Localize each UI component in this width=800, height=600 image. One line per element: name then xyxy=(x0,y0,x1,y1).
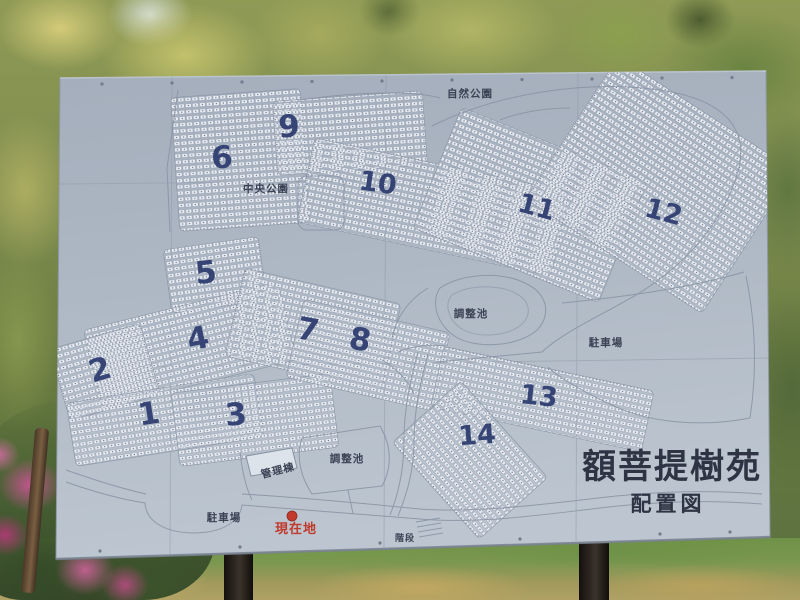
section-number-5: 5 xyxy=(193,254,218,292)
label-central-park: 中央公園 xyxy=(243,182,289,195)
label-nature-park: 自然公園 xyxy=(447,87,493,100)
section-number-13: 13 xyxy=(519,379,560,414)
section-number-9: 9 xyxy=(277,108,300,145)
label-stairs: 階段 xyxy=(395,532,415,544)
signboard-photo: 1 2 3 4 5 6 7 8 9 10 11 12 13 14 自然公園 中央… xyxy=(0,0,800,600)
label-current-location: 現在地 xyxy=(275,521,317,537)
board-subtitle: 配置図 xyxy=(631,492,706,516)
section-number-10: 10 xyxy=(357,166,399,202)
label-pond-lower: 調整池 xyxy=(330,452,365,465)
label-parking-west: 駐車場 xyxy=(207,511,242,524)
section-number-3: 3 xyxy=(224,396,249,434)
board-title: 額菩提樹苑 xyxy=(582,447,762,487)
cemetery-map-board: 1 2 3 4 5 6 7 8 9 10 11 12 13 14 自然公園 中央… xyxy=(0,0,800,600)
label-parking-east: 駐車場 xyxy=(589,336,624,349)
label-pond-upper: 調整池 xyxy=(454,307,489,320)
section-number-6: 6 xyxy=(210,139,233,176)
current-location-dot xyxy=(287,511,297,521)
section-number-14: 14 xyxy=(457,419,497,453)
